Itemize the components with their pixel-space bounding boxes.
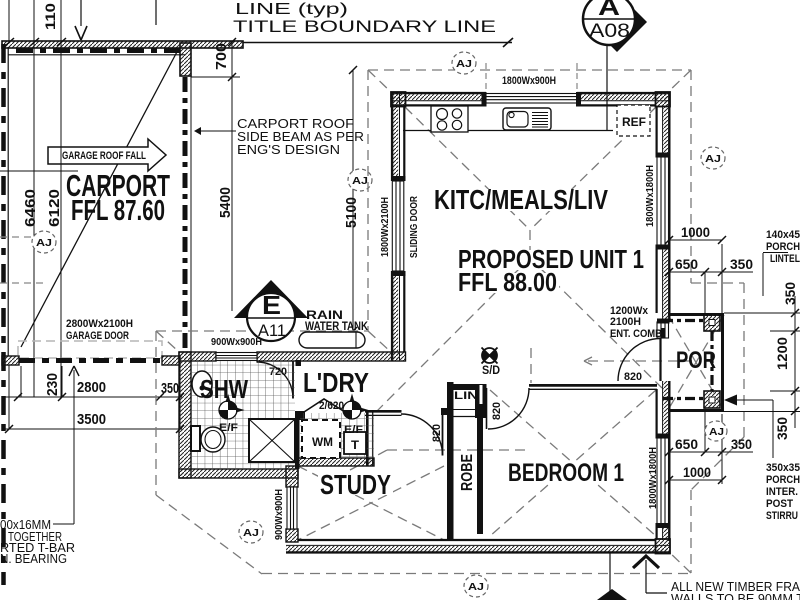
svg-text:1800Wx1800H: 1800Wx1800H <box>648 447 659 509</box>
svg-text:1800Wx1800H: 1800Wx1800H <box>645 165 656 227</box>
svg-text:N. BEARING: N. BEARING <box>0 552 67 566</box>
svg-text:FFL 88.00: FFL 88.00 <box>458 267 557 297</box>
svg-text:2800Wx2100H: 2800Wx2100H <box>66 318 133 330</box>
svg-text:3500: 3500 <box>77 411 106 428</box>
svg-text:WATER TANK: WATER TANK <box>305 319 368 333</box>
svg-text:1800Wx900H: 1800Wx900H <box>502 75 556 87</box>
svg-text:AJ: AJ <box>456 59 472 70</box>
svg-text:POST: POST <box>766 498 793 510</box>
svg-text:350: 350 <box>161 380 179 397</box>
svg-text:1000: 1000 <box>681 224 710 240</box>
svg-text:SLIDING DOOR: SLIDING DOOR <box>409 195 420 258</box>
svg-text:6460: 6460 <box>22 189 39 227</box>
svg-text:A11: A11 <box>258 321 286 340</box>
svg-text:5100: 5100 <box>343 197 360 228</box>
svg-text:140x45: 140x45 <box>766 229 800 241</box>
svg-text:T: T <box>351 438 360 452</box>
svg-text:AJ: AJ <box>709 427 724 438</box>
svg-text:BEDROOM 1: BEDROOM 1 <box>508 459 624 487</box>
svg-text:KITC/MEALS/LIV: KITC/MEALS/LIV <box>434 184 608 215</box>
svg-text:LINTEL: LINTEL <box>770 253 800 265</box>
svg-text:LIN: LIN <box>454 390 478 402</box>
svg-text:WALLS TO BE 90MM T: WALLS TO BE 90MM T <box>671 591 800 600</box>
svg-text:ENG'S DESIGN: ENG'S DESIGN <box>237 142 340 157</box>
svg-text:1800Wx2100H: 1800Wx2100H <box>380 197 391 257</box>
svg-text:350: 350 <box>731 436 752 452</box>
svg-text:110: 110 <box>42 3 58 30</box>
svg-text:350: 350 <box>782 282 798 305</box>
svg-text:REF: REF <box>622 115 646 129</box>
svg-text:ENT. COMB: ENT. COMB <box>610 328 662 340</box>
svg-text:900Wx900H: 900Wx900H <box>274 489 285 540</box>
svg-text:650: 650 <box>675 256 698 272</box>
svg-text:S/D: S/D <box>482 365 500 377</box>
svg-text:350: 350 <box>774 417 790 440</box>
svg-text:LINE (typ): LINE (typ) <box>235 1 348 18</box>
svg-text:900Wx900H: 900Wx900H <box>211 337 262 348</box>
svg-text:350: 350 <box>730 256 753 272</box>
svg-text:650: 650 <box>675 436 698 452</box>
svg-text:AJ: AJ <box>243 528 259 539</box>
svg-text:E/F: E/F <box>344 424 363 436</box>
svg-text:2100H: 2100H <box>610 316 641 328</box>
svg-text:FFL 87.60: FFL 87.60 <box>71 195 165 227</box>
svg-text:350x35: 350x35 <box>766 462 800 474</box>
svg-text:A08: A08 <box>589 21 630 42</box>
svg-text:AJ: AJ <box>352 176 368 187</box>
svg-text:820: 820 <box>431 424 443 442</box>
svg-text:PORCH: PORCH <box>766 474 800 486</box>
svg-text:POR: POR <box>676 347 716 374</box>
svg-text:WM: WM <box>312 435 333 449</box>
svg-text:AJ: AJ <box>36 238 52 249</box>
svg-text:AJ: AJ <box>705 154 721 165</box>
svg-text:2800: 2800 <box>77 379 106 396</box>
svg-text:E: E <box>262 290 281 320</box>
svg-text:820: 820 <box>624 371 642 383</box>
svg-text:STUDY: STUDY <box>320 469 391 500</box>
svg-text:GARAGE DOOR: GARAGE DOOR <box>66 330 129 342</box>
svg-text:6120: 6120 <box>46 189 63 227</box>
svg-text:SHW: SHW <box>200 374 248 404</box>
svg-text:1200: 1200 <box>774 337 790 370</box>
svg-text:820: 820 <box>491 402 503 420</box>
svg-text:TITLE BOUNDARY LINE: TITLE BOUNDARY LINE <box>233 17 496 36</box>
svg-text:GARAGE ROOF FALL: GARAGE ROOF FALL <box>62 150 146 162</box>
svg-text:230: 230 <box>44 373 61 396</box>
svg-text:ROBE: ROBE <box>459 454 476 491</box>
svg-text:INTER.: INTER. <box>766 486 798 498</box>
svg-text:1000: 1000 <box>683 464 711 480</box>
svg-text:L'DRY: L'DRY <box>303 367 369 398</box>
svg-text:700: 700 <box>213 43 230 70</box>
svg-text:5400: 5400 <box>217 187 234 218</box>
svg-text:2/620: 2/620 <box>319 400 344 412</box>
svg-text:AJ: AJ <box>468 582 484 593</box>
svg-text:PORCH: PORCH <box>766 241 800 253</box>
svg-text:STIRRU: STIRRU <box>766 510 798 522</box>
svg-text:A: A <box>598 0 620 21</box>
